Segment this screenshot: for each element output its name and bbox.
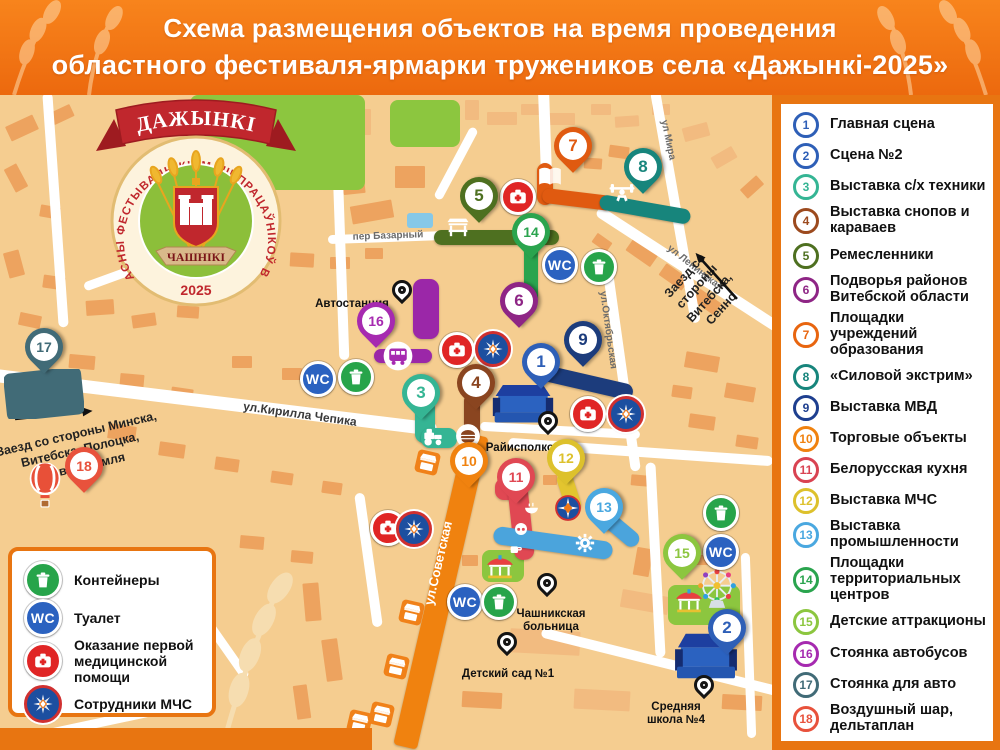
- legend-badge-15: 15: [793, 609, 819, 635]
- legend-item-9: 9Выставка МВД: [793, 395, 989, 421]
- legend-list: 1Главная сцена2Сцена №23Выставка с/х тех…: [781, 104, 993, 741]
- legend-item-2: 2Сцена №2: [793, 143, 989, 169]
- legend-badge-17: 17: [793, 672, 819, 698]
- building: [18, 311, 42, 328]
- legend-label: Ремесленники: [830, 248, 934, 264]
- legend-label: Подворья районов Витебской области: [830, 274, 969, 306]
- legend-item-15: 15Детские аттракционы: [793, 609, 989, 635]
- legend-badge-10: 10: [793, 426, 819, 452]
- map-pin-number: 11: [502, 463, 530, 491]
- legend-badge-6: 6: [793, 277, 819, 303]
- map-pin-number: 2: [713, 614, 741, 642]
- building: [549, 113, 575, 125]
- street-label: ул.Кирилла Чепика: [242, 399, 357, 429]
- wc-label: WC: [31, 610, 55, 626]
- place-pin: [388, 276, 416, 304]
- legend-label: Сцена №2: [830, 148, 903, 164]
- parking-icon: [4, 369, 84, 419]
- map-pin-3: 3: [394, 366, 448, 420]
- stall-icon: [396, 597, 426, 627]
- wc-icon: WC: [703, 534, 739, 570]
- carousel-icon: [485, 554, 515, 580]
- building: [395, 166, 425, 188]
- building: [214, 456, 240, 472]
- legend-item-14: 14Площадки территориальных центров: [793, 556, 989, 604]
- building: [591, 104, 611, 115]
- legend-item-1: 1Главная сцена: [793, 112, 989, 138]
- place-label: Чашникская больница: [517, 608, 586, 634]
- trash-icon: [703, 495, 739, 531]
- festival-map: ДАЖЫНКІ АБЛАСНЫ ФЕСТЫВАЛЬ-КІРМАШ ПРАЦАЎН…: [0, 95, 772, 750]
- building: [710, 145, 737, 168]
- map-pin-number: 4: [462, 369, 490, 397]
- trash-icon: [581, 249, 617, 285]
- map-pin-number: 8: [629, 153, 657, 181]
- map-pin-17: 17: [17, 320, 71, 374]
- legend-item-13: 13Выставка промышленности: [793, 519, 989, 551]
- place-pin: [533, 569, 561, 597]
- map-pin-number: 7: [559, 132, 587, 160]
- legend-label: Выставка с/х техники: [830, 179, 985, 195]
- place-label: Детский сад №1: [462, 668, 554, 681]
- poster-title-line2: областного фестиваля-ярмарки тружеников …: [0, 50, 1000, 81]
- wc-icon: WC: [24, 599, 62, 637]
- map-pin-number: 12: [552, 444, 580, 472]
- legend-item-11: 11Белорусская кухня: [793, 457, 989, 483]
- map-legend-item-wc: WCТуалет: [24, 599, 204, 637]
- map-legend-item-mchs: Сотрудники МЧС: [24, 685, 204, 723]
- bottom-frame-strip: [0, 728, 372, 750]
- map-legend-box: КонтейнерыWCТуалетОказание первой медици…: [8, 547, 216, 717]
- building: [615, 115, 640, 128]
- legend-badge-13: 13: [793, 522, 819, 548]
- map-pin-number: 3: [407, 379, 435, 407]
- legend-label: Торговые объекты: [830, 431, 967, 447]
- legend-badge-4: 4: [793, 208, 819, 234]
- legend-badge-9: 9: [793, 395, 819, 421]
- wc-icon: WC: [300, 361, 336, 397]
- legend-label: Площадки учреждений образования: [830, 311, 989, 359]
- legend-label: Главная сцена: [830, 117, 935, 133]
- tractor-icon: [420, 424, 446, 450]
- legend-label: Стоянка автобусов: [830, 646, 967, 662]
- park-area: [390, 100, 460, 147]
- legend-label: Детские аттракционы: [830, 614, 986, 630]
- legend-badge-7: 7: [793, 322, 819, 348]
- legend-label: Стоянка для авто: [830, 677, 956, 693]
- legend-item-10: 10Торговые объекты: [793, 426, 989, 452]
- bowl-icon: [523, 500, 540, 517]
- legend-label: Воздушный шар, дельтаплан: [830, 703, 953, 735]
- building: [5, 114, 39, 141]
- building: [462, 555, 478, 566]
- mchs-icon: [608, 396, 644, 432]
- craft-icon: [444, 214, 472, 242]
- legend-sidebar: 1Главная сцена2Сцена №23Выставка с/х тех…: [772, 95, 1000, 750]
- building: [239, 534, 264, 549]
- map-legend-item-med: Оказание первой медицинской помощи: [24, 637, 204, 685]
- legend-label: «Силовой экстрим»: [830, 369, 973, 385]
- route-segment: [413, 279, 439, 339]
- map-pin-number: 18: [70, 452, 98, 480]
- legend-badge-3: 3: [793, 174, 819, 200]
- legend-badge-5: 5: [793, 243, 819, 269]
- book-icon: [537, 164, 563, 190]
- legend-item-12: 12Выставка МЧС: [793, 488, 989, 514]
- legend-item-18: 18Воздушный шар, дельтаплан: [793, 703, 989, 735]
- map-pin-number: 16: [362, 307, 390, 335]
- wc-label: WC: [453, 594, 477, 610]
- building: [270, 471, 293, 486]
- mchs-icon: [475, 331, 511, 367]
- building: [365, 248, 383, 259]
- building: [574, 689, 631, 712]
- ferris-icon: [696, 567, 738, 609]
- map-pin-number: 13: [590, 493, 618, 521]
- pretzel-icon: [513, 521, 529, 537]
- logo-town-text: ЧАШНІКІ: [167, 250, 225, 264]
- building: [671, 385, 692, 400]
- building: [302, 582, 321, 621]
- stall-icon: [381, 651, 411, 681]
- map-pin-number: 15: [668, 539, 696, 567]
- legend-badge-2: 2: [793, 143, 819, 169]
- trash-icon: [24, 561, 62, 599]
- map-legend-item-trash: Контейнеры: [24, 561, 204, 599]
- med-icon: [439, 332, 475, 368]
- legend-item-6: 6Подворья районов Витебской области: [793, 274, 989, 306]
- building: [68, 354, 95, 370]
- building: [724, 382, 756, 402]
- bus-icon: [383, 341, 413, 371]
- balloon-icon: [28, 463, 62, 509]
- building: [321, 638, 343, 682]
- festival-logo: ДАЖЫНКІ АБЛАСНЫ ФЕСТЫВАЛЬ-КІРМАШ ПРАЦАЎН…: [86, 97, 306, 312]
- stall-icon: [412, 447, 442, 477]
- wc-icon: WC: [542, 247, 578, 283]
- legend-badge-16: 16: [793, 641, 819, 667]
- legend-label: Выставка промышленности: [830, 519, 959, 551]
- building: [4, 163, 29, 193]
- title-banner: Схема размещения объектов на время прове…: [0, 0, 1000, 95]
- map-pin-number: 10: [455, 447, 483, 475]
- building: [688, 413, 716, 430]
- building: [350, 199, 394, 224]
- place-label: Средняя школа №4: [647, 701, 705, 727]
- legend-item-16: 16Стоянка автобусов: [793, 641, 989, 667]
- trash-icon: [338, 359, 374, 395]
- legend-item-3: 3Выставка с/х техники: [793, 174, 989, 200]
- building: [543, 475, 557, 485]
- building: [3, 249, 25, 278]
- wc-icon: WC: [447, 584, 483, 620]
- legend-badge-1: 1: [793, 112, 819, 138]
- legend-badge-8: 8: [793, 364, 819, 390]
- legend-badge-12: 12: [793, 488, 819, 514]
- legend-item-8: 8«Силовой экстрим»: [793, 364, 989, 390]
- wc-label: WC: [306, 371, 330, 387]
- logo-year-text: 2025: [180, 282, 211, 298]
- med-icon: [500, 179, 536, 215]
- legend-label: Выставка МЧС: [830, 493, 937, 509]
- wc-label: WC: [548, 257, 572, 273]
- map-pin-number: 14: [517, 218, 545, 246]
- legend-item-17: 17Стоянка для авто: [793, 672, 989, 698]
- legend-item-7: 7Площадки учреждений образования: [793, 311, 989, 359]
- mchsbadge-icon: [555, 495, 581, 521]
- wc-label: WC: [709, 544, 733, 560]
- building: [740, 175, 764, 199]
- building: [462, 691, 503, 709]
- legend-label: Белорусская кухня: [830, 462, 967, 478]
- legend-badge-14: 14: [793, 567, 819, 593]
- poster-title-line1: Схема размещения объектов на время прове…: [0, 13, 1000, 44]
- building: [465, 100, 479, 120]
- map-legend-label: Оказание первой медицинской помощи: [74, 637, 204, 685]
- building: [735, 435, 758, 450]
- legend-label: Площадки территориальных центров: [830, 556, 989, 604]
- mchs-icon: [24, 685, 62, 723]
- legend-item-5: 5Ремесленники: [793, 243, 989, 269]
- building: [722, 693, 763, 710]
- festival-poster: Схема размещения объектов на время прове…: [0, 0, 1000, 750]
- gear-icon: [574, 532, 596, 554]
- map-pin-number: 1: [527, 348, 555, 376]
- pond: [407, 213, 433, 228]
- building: [321, 481, 342, 496]
- building: [487, 112, 517, 125]
- med-icon: [24, 642, 62, 680]
- legend-badge-18: 18: [793, 706, 819, 732]
- map-legend-label: Туалет: [74, 610, 121, 626]
- med-icon: [570, 396, 606, 432]
- building: [131, 312, 157, 328]
- legend-label: Выставка снопов и караваев: [830, 205, 970, 237]
- legend-item-4: 4Выставка снопов и караваев: [793, 205, 989, 237]
- building: [282, 368, 302, 380]
- building: [232, 356, 252, 368]
- building: [684, 351, 720, 373]
- legend-label: Выставка МВД: [830, 400, 937, 416]
- map-legend-label: Контейнеры: [74, 572, 160, 588]
- map-pin-number: 6: [505, 287, 533, 315]
- building: [682, 122, 711, 142]
- legend-badge-11: 11: [793, 457, 819, 483]
- map-legend-label: Сотрудники МЧС: [74, 696, 192, 712]
- logo-crown: [192, 178, 200, 185]
- map-pin-number: 9: [569, 326, 597, 354]
- map-pin-number: 17: [30, 333, 58, 361]
- trash-icon: [481, 584, 517, 620]
- mchs-icon: [396, 511, 432, 547]
- map-pin-number: 5: [465, 182, 493, 210]
